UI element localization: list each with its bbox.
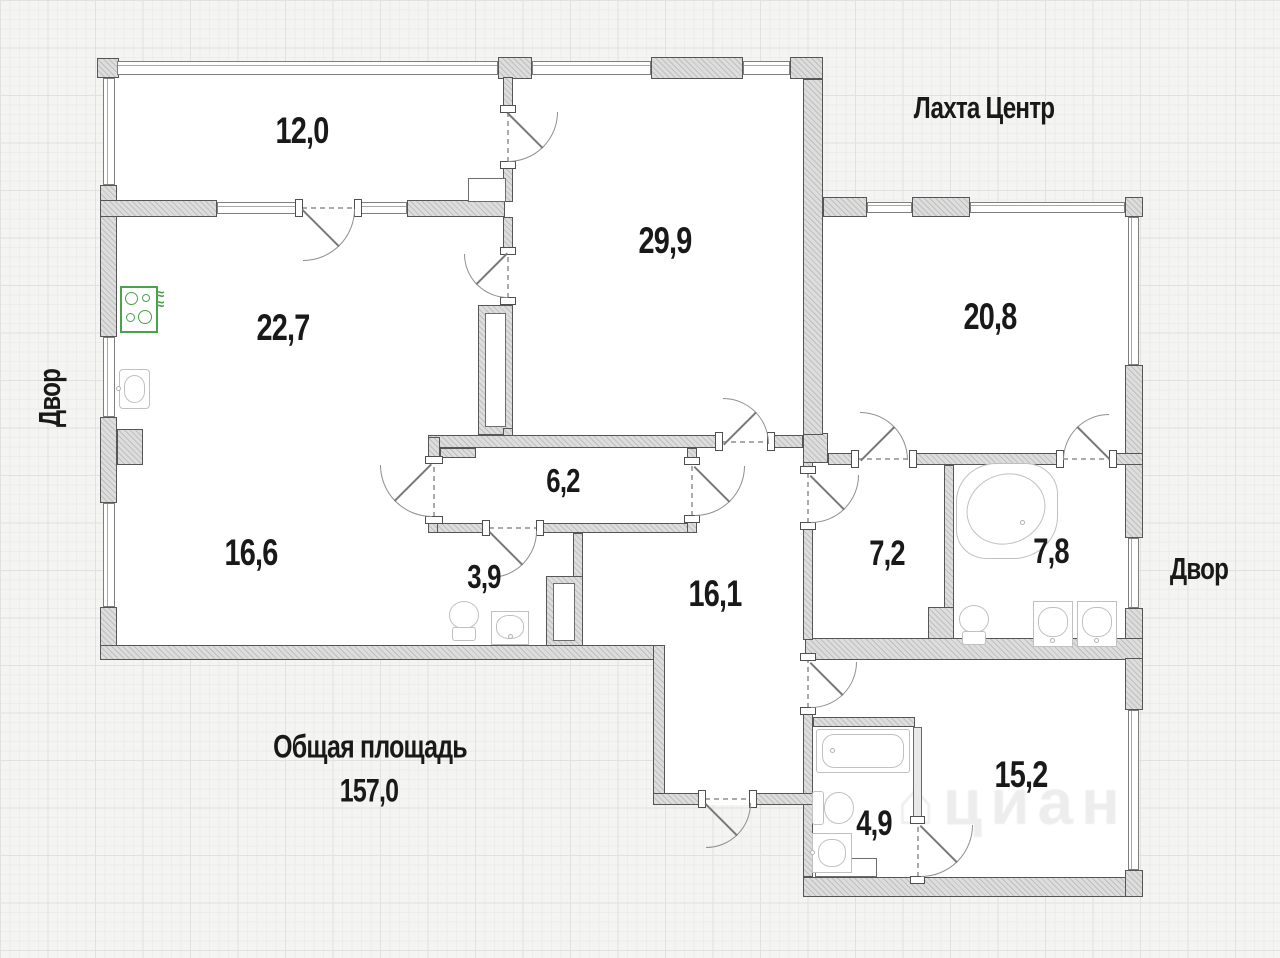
wall: [100, 645, 665, 660]
drain-icon: [1050, 638, 1055, 643]
room-label: 12,0: [268, 110, 336, 152]
wall: [428, 435, 722, 448]
wall: [651, 57, 743, 79]
stove-burner: [126, 313, 135, 322]
glass-partition: [355, 202, 407, 214]
wall: [440, 448, 476, 458]
toilet-tank: [962, 631, 986, 645]
door-opening: [503, 254, 513, 298]
wall: [100, 200, 217, 217]
wash-basin-bowl: [1038, 607, 1068, 637]
room-label: 3,9: [463, 558, 506, 596]
wall: [803, 433, 828, 463]
wall: [498, 57, 532, 79]
yard-label-right: Двор: [1162, 551, 1237, 587]
room-label: 15,2: [987, 754, 1055, 796]
room-label: 16,6: [217, 532, 285, 574]
room-label: 7,2: [864, 534, 910, 574]
glass-partition: [217, 202, 302, 214]
stove-burner: [138, 310, 152, 324]
wall: [653, 645, 665, 805]
wall: [803, 79, 823, 435]
partition-wall: [913, 727, 922, 823]
window: [970, 202, 1125, 213]
duct-shaft: [553, 583, 575, 641]
window: [103, 503, 115, 607]
window: [743, 61, 790, 75]
window: [1128, 538, 1139, 608]
wall: [750, 793, 813, 805]
door-opening: [913, 823, 922, 877]
drain-icon: [1094, 638, 1099, 643]
wall: [803, 877, 1143, 897]
toilet-icon: [824, 792, 854, 824]
room-label: 22,7: [249, 307, 317, 349]
wall: [1125, 658, 1143, 710]
wall: [100, 417, 117, 503]
yard-label-left: Двор: [32, 361, 68, 436]
door-opening: [489, 523, 537, 533]
total-area-label: Общая площадь: [246, 729, 494, 766]
duct-shaft: [485, 313, 506, 427]
wall: [813, 717, 915, 727]
toilet-icon: [959, 605, 989, 633]
door-opening: [302, 202, 355, 214]
room-label: 20,8: [956, 296, 1024, 338]
door-opening: [803, 473, 813, 523]
drain-icon: [830, 748, 835, 753]
faucet-icon: [810, 850, 815, 855]
wall: [1125, 365, 1143, 538]
wall: [823, 197, 867, 217]
window: [1128, 710, 1139, 870]
room-label: 6,2: [542, 462, 585, 500]
room-label: 7,8: [1028, 532, 1074, 572]
entry-door-leaf: [705, 803, 738, 836]
wall: [912, 197, 970, 217]
wall: [790, 57, 823, 79]
wall: [407, 200, 505, 217]
door-opening: [687, 464, 697, 516]
room-label: 4,9: [851, 804, 897, 844]
window: [117, 61, 498, 75]
window: [103, 78, 115, 185]
total-area-value: 157,0: [331, 773, 406, 810]
stove-burner: [142, 294, 150, 302]
wall: [117, 429, 143, 465]
door-opening: [503, 112, 513, 162]
kitchen-sink-basin: [124, 375, 145, 403]
toilet-tank: [452, 627, 476, 641]
stove-burner: [125, 292, 138, 305]
faucet-icon: [116, 386, 121, 391]
landmark-label: Лахта Центр: [894, 90, 1074, 126]
wall: [537, 523, 697, 533]
wall: [97, 58, 119, 78]
room-label: 16,1: [681, 573, 749, 615]
window: [532, 61, 651, 75]
drain-icon: [508, 634, 513, 639]
window: [103, 337, 115, 417]
toilet-tank: [812, 791, 824, 825]
toilet-icon: [449, 601, 479, 629]
wall: [803, 523, 813, 640]
stove-icon: [120, 286, 158, 333]
entry-door-opening: [705, 793, 750, 805]
wash-basin-bowl: [1082, 607, 1112, 637]
wall: [1125, 870, 1143, 897]
steam-icon: ≈≈: [156, 290, 164, 310]
room-floor: [660, 645, 810, 800]
door-opening: [428, 463, 440, 517]
room-label: 29,9: [631, 220, 699, 262]
wall: [1125, 197, 1143, 217]
window: [867, 202, 912, 213]
wash-basin-bowl: [818, 839, 846, 867]
window: [1128, 217, 1139, 365]
wall-niche: [468, 178, 506, 202]
floor-plan: ⌂циан: [0, 0, 1280, 958]
door-opening: [803, 660, 813, 708]
drain-icon: [1020, 520, 1025, 525]
